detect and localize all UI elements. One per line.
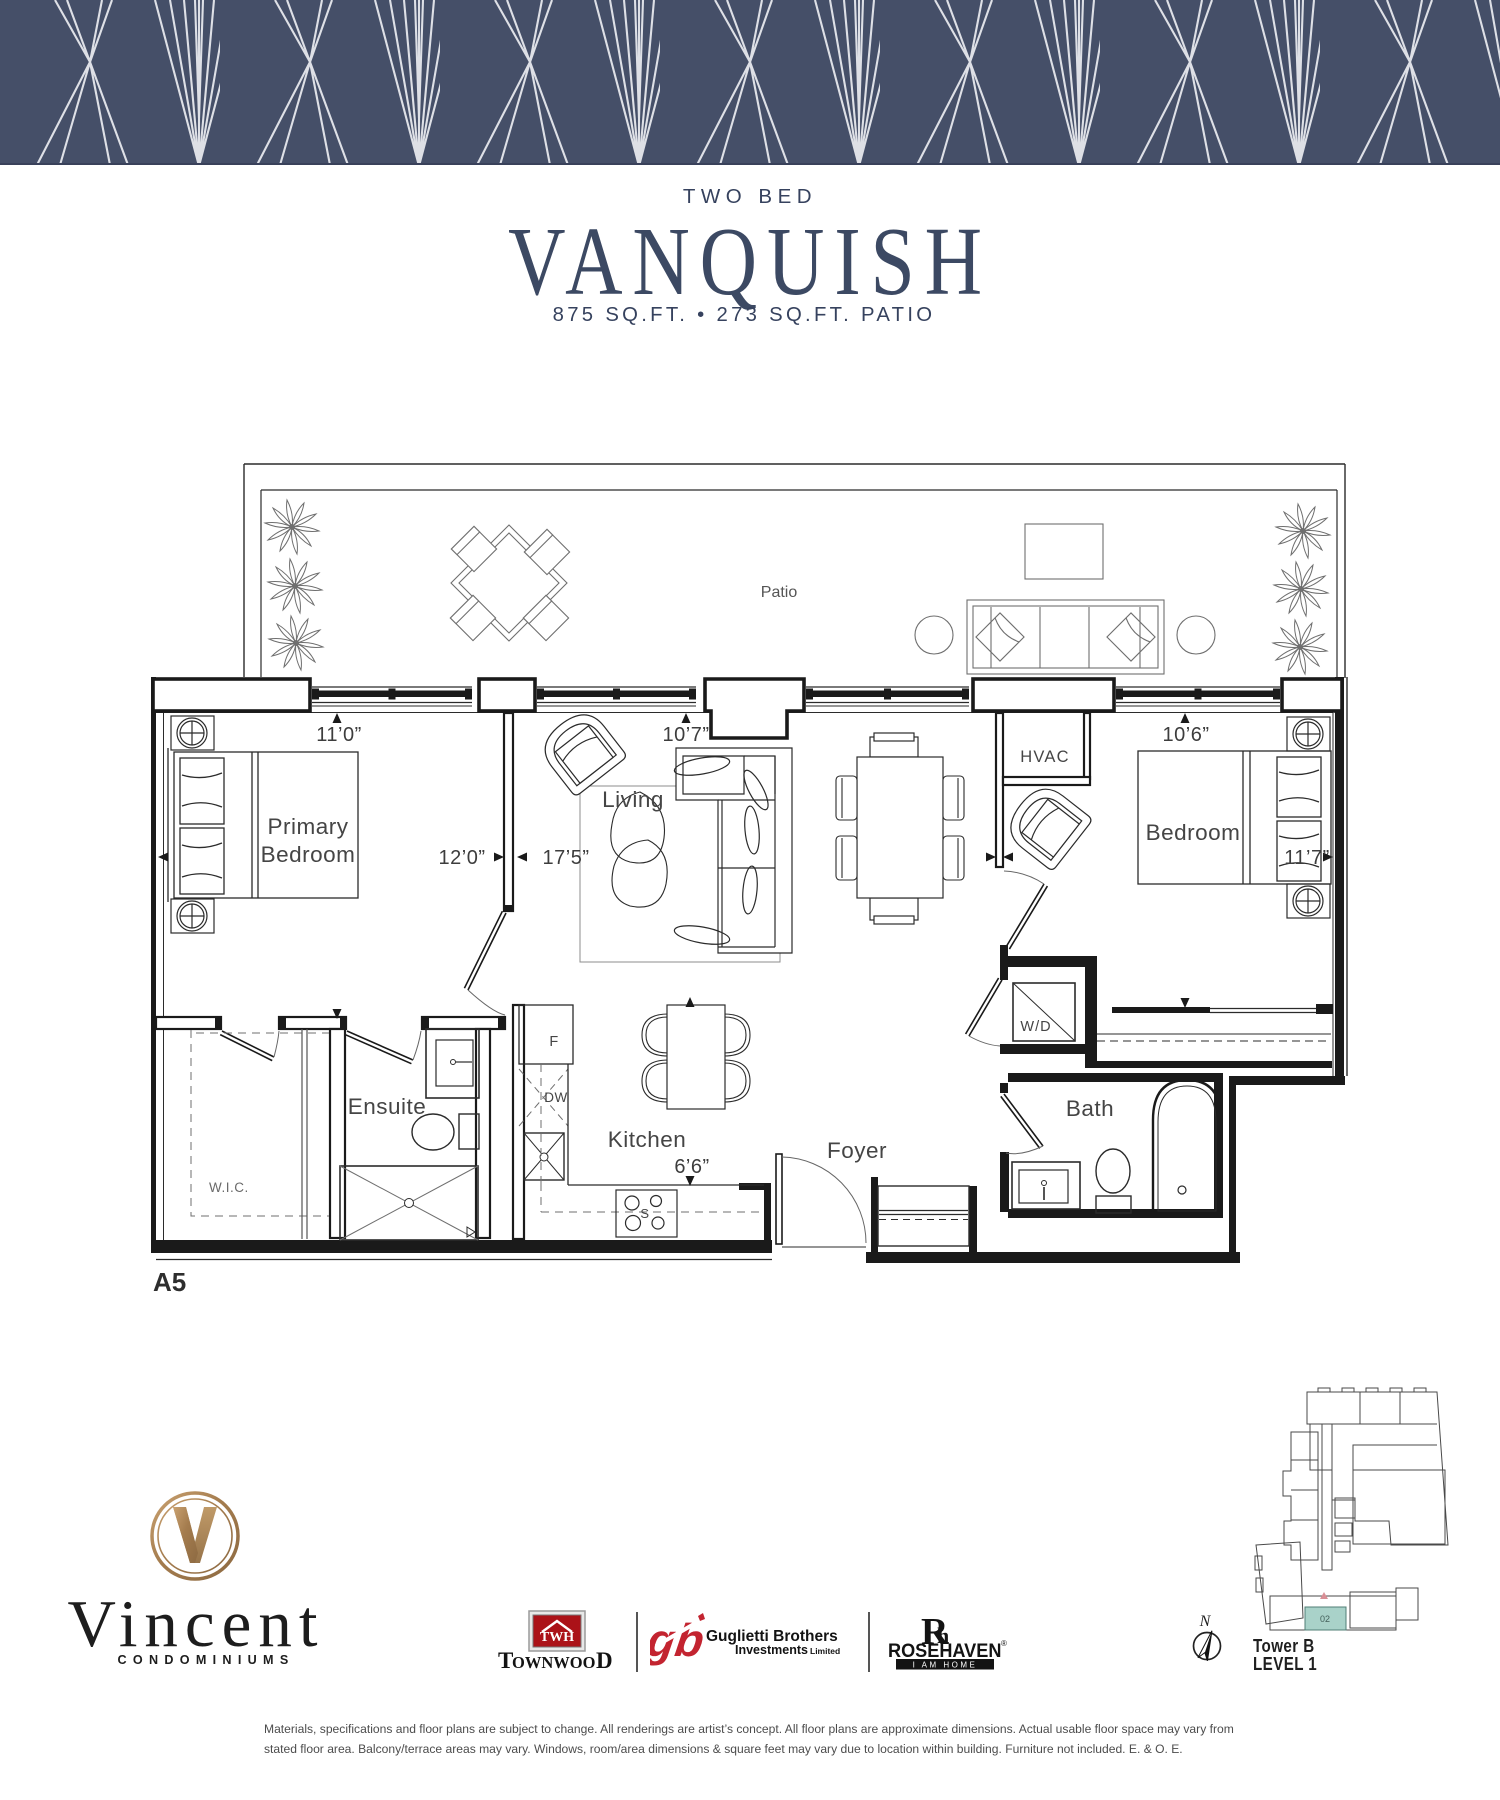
svg-text:Ensuite: Ensuite <box>348 1094 427 1119</box>
svg-text:OWNWOO: OWNWOO <box>512 1653 596 1672</box>
svg-text:ROSEHAVEN: ROSEHAVEN <box>888 1639 1001 1661</box>
svg-text:®: ® <box>1001 1639 1007 1648</box>
svg-text:gb: gb <box>650 1614 707 1666</box>
svg-text:Investments: Investments <box>735 1643 808 1657</box>
svg-text:10’7”: 10’7” <box>663 724 710 746</box>
svg-text:02: 02 <box>1320 1614 1330 1624</box>
svg-text:Kitchen: Kitchen <box>608 1127 687 1152</box>
svg-text:A5: A5 <box>153 1267 186 1297</box>
svg-text:Limited: Limited <box>810 1646 840 1656</box>
svg-text:12’0”: 12’0” <box>439 847 486 869</box>
svg-text:Bath: Bath <box>1066 1096 1114 1121</box>
svg-text:DW: DW <box>544 1090 568 1105</box>
svg-text:S: S <box>640 1206 649 1221</box>
svg-text:N: N <box>1199 1613 1212 1630</box>
svg-text:Primary: Primary <box>268 814 349 839</box>
svg-text:W/D: W/D <box>1020 1019 1051 1035</box>
svg-text:11’7”: 11’7” <box>1284 847 1330 869</box>
svg-text:Living: Living <box>602 787 664 812</box>
svg-text:10’6”: 10’6” <box>1163 724 1210 746</box>
svg-text:Bedroom: Bedroom <box>261 842 356 867</box>
svg-text:HVAC: HVAC <box>1020 748 1069 766</box>
svg-text:Patio: Patio <box>761 584 798 601</box>
svg-text:6’6”: 6’6” <box>674 1156 709 1178</box>
svg-text:LEVEL 1: LEVEL 1 <box>1253 1654 1317 1675</box>
svg-text:17’5”: 17’5” <box>543 847 590 869</box>
svg-text:Foyer: Foyer <box>827 1138 887 1163</box>
svg-text:F: F <box>549 1034 558 1050</box>
svg-text:11’0”: 11’0” <box>316 724 362 746</box>
svg-text:Bedroom: Bedroom <box>1146 820 1241 845</box>
svg-text:I AM HOME: I AM HOME <box>913 1661 978 1670</box>
svg-text:D: D <box>596 1648 613 1672</box>
svg-text:W.I.C.: W.I.C. <box>209 1180 249 1195</box>
svg-text:TWH: TWH <box>540 1630 574 1645</box>
